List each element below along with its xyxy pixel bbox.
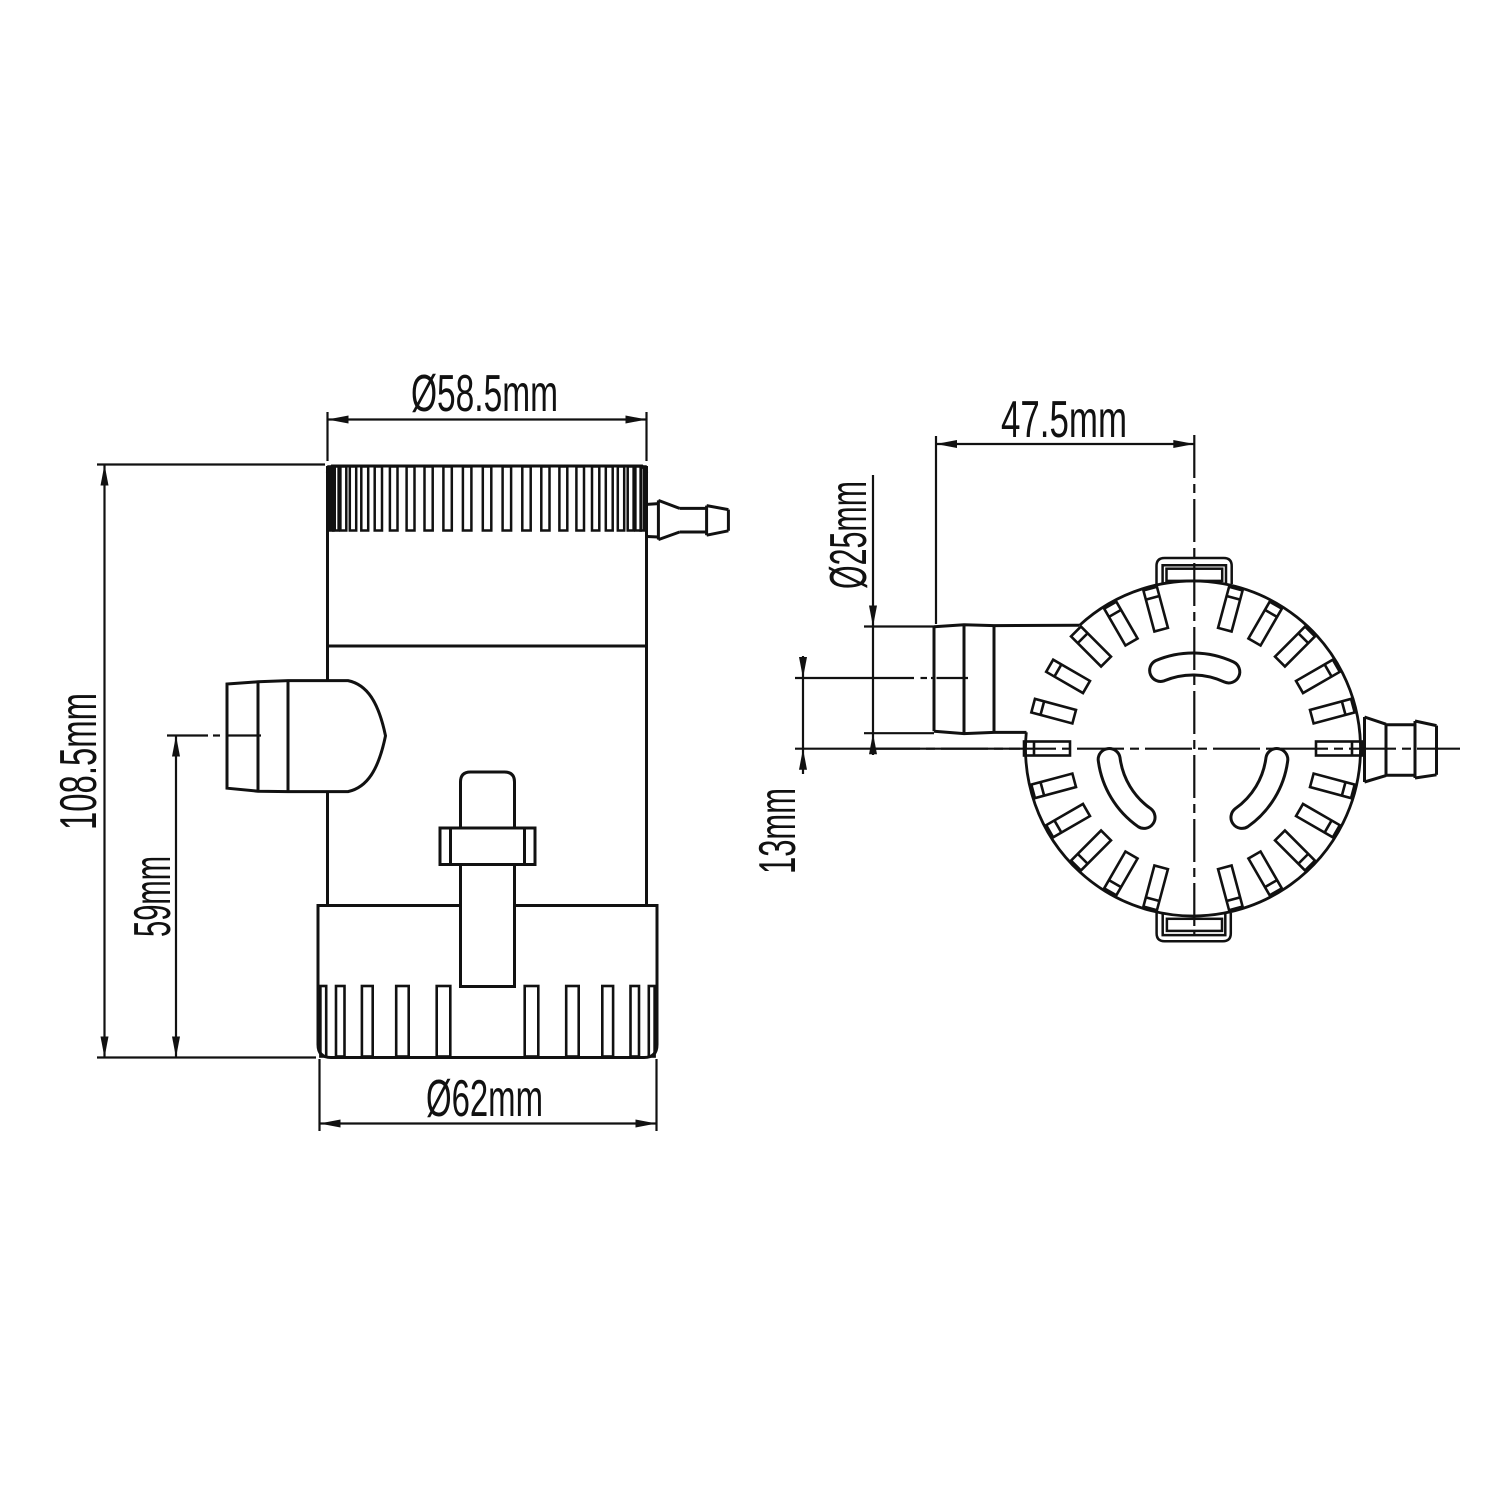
svg-text:47.5mm: 47.5mm xyxy=(1001,391,1127,449)
svg-text:108.5mm: 108.5mm xyxy=(50,693,108,830)
svg-text:Ø25mm: Ø25mm xyxy=(820,481,878,589)
svg-text:Ø58.5mm: Ø58.5mm xyxy=(411,365,558,423)
svg-text:59mm: 59mm xyxy=(124,856,182,937)
svg-text:13mm: 13mm xyxy=(749,788,807,874)
svg-text:Ø62mm: Ø62mm xyxy=(426,1070,543,1128)
